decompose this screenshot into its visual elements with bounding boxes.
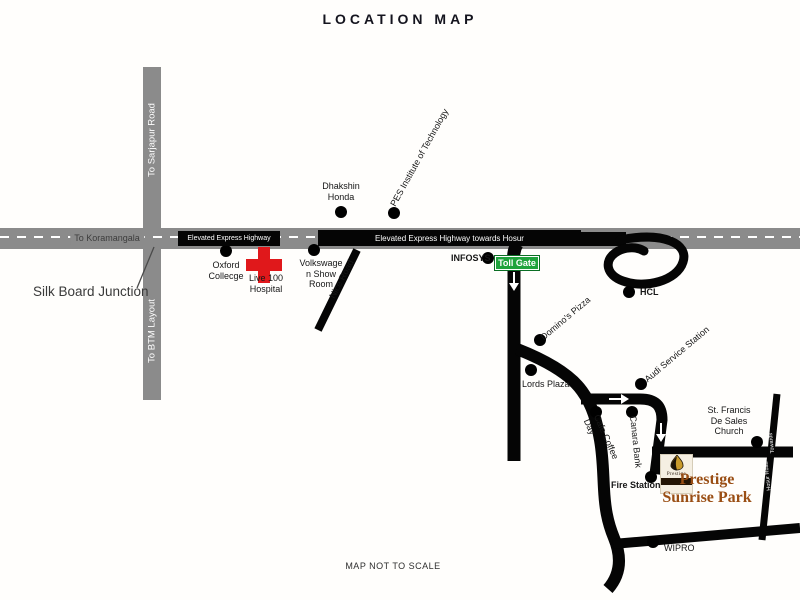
elevated-highway-bar-left: Elevated Express Highway — [178, 231, 280, 246]
poi-label-wipro: WIPRO — [664, 543, 695, 554]
poi-label-hcl: HCL — [640, 287, 659, 298]
poi-dot-pes — [388, 207, 400, 219]
poi-label-church: St. Francis De Sales Church — [707, 405, 750, 437]
poi-label-hospital: Live 100 Hospital — [249, 273, 283, 294]
highway-exit-loop — [608, 237, 684, 284]
poi-dot-hcl — [623, 286, 635, 298]
poi-label-prestige-sunrise-park: Prestige Sunrise Park — [662, 471, 751, 507]
poi-dot-church — [751, 436, 763, 448]
poi-label-fire-station: Fire Station — [611, 480, 661, 491]
poi-dot-dhakshin-honda — [335, 206, 347, 218]
poi-label-infosys: INFOSYS — [451, 253, 491, 264]
road-network — [0, 0, 800, 600]
location-map: LOCATION MAP To Sarjapur Road To BTM Lay… — [0, 0, 800, 600]
elevated-highway-bar-right: Elevated Express Highway towards Hosur — [318, 230, 581, 246]
poi-dot-wipro — [647, 536, 659, 548]
wipro-road — [613, 528, 800, 544]
toll-gate-sign: Toll Gate — [494, 255, 540, 271]
silk-board-junction-label: Silk Board Junction — [33, 284, 149, 299]
poi-label-lords-plaza: Lords Plaza — [522, 379, 570, 390]
poi-dot-lords-plaza — [525, 364, 537, 376]
poi-dot-oxford — [220, 245, 232, 257]
prestige-flame-icon — [670, 455, 684, 472]
silk-board-pointer-line — [137, 247, 154, 288]
poi-label-dhakshin-honda: Dhakshin Honda — [322, 181, 360, 202]
poi-label-oxford: Oxford Collecge — [208, 260, 243, 281]
